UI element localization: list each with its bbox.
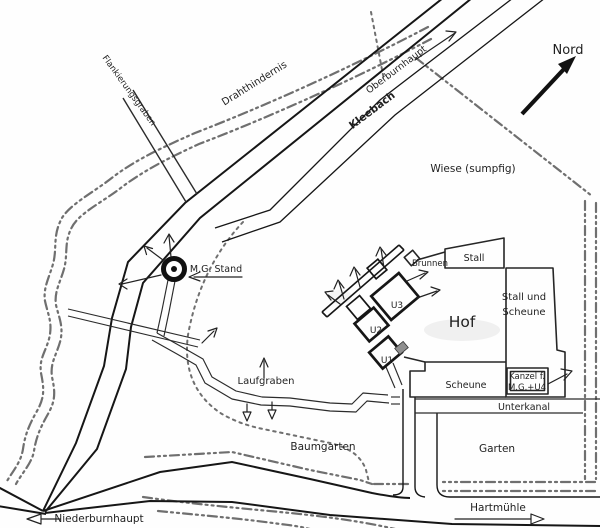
label-garten: Garten bbox=[479, 443, 515, 455]
label-kanzel-1: Kanzel f. bbox=[509, 372, 545, 382]
arrow-head bbox=[268, 410, 276, 419]
label-unterkanal: Unterkanal bbox=[498, 402, 550, 413]
arrow-head bbox=[144, 246, 153, 255]
trench-fire-arrows bbox=[202, 328, 276, 421]
label-mg-stand: M.G. Stand bbox=[190, 264, 242, 275]
label-u2: U2 bbox=[370, 326, 382, 336]
label-u3: U3 bbox=[391, 301, 403, 311]
map-canvas: Nord Wiese (sumpfig) Drahthindernis Ober… bbox=[0, 0, 600, 528]
label-stall-und-scheune-1: Stall und bbox=[502, 292, 546, 303]
label-wiese: Wiese (sumpfig) bbox=[430, 163, 515, 175]
communication-trench-line-1 bbox=[157, 333, 388, 404]
label-baumgarten: Baumgarten bbox=[290, 441, 355, 453]
hatched-block bbox=[395, 341, 409, 354]
hartmuehle-direction-arrow bbox=[455, 514, 544, 524]
arrow-head bbox=[334, 280, 344, 289]
north-arrow-shaft bbox=[522, 69, 564, 114]
trench-bunker-connector-2 bbox=[386, 367, 395, 388]
north-arrow bbox=[522, 56, 576, 114]
label-u1: U1 bbox=[381, 356, 393, 366]
garden-fence bbox=[437, 413, 600, 497]
rampart-room bbox=[367, 259, 387, 279]
farm-lane-west-edge bbox=[393, 389, 403, 495]
label-stall-und-scheune-2: Scheune bbox=[502, 307, 545, 318]
bunker-complex bbox=[322, 245, 419, 369]
trench-bunker-connector-1 bbox=[393, 363, 402, 385]
label-niederburnhaupt: Niederburnhaupt bbox=[54, 513, 143, 525]
sketch-map: Nord Wiese (sumpfig) Drahthindernis Ober… bbox=[0, 0, 600, 528]
south-road-upper-edge bbox=[43, 462, 410, 511]
arrow-shaft bbox=[202, 331, 214, 343]
arrow-shaft bbox=[122, 275, 161, 284]
arrow-head bbox=[27, 514, 41, 524]
mg-stand-dot bbox=[171, 266, 177, 272]
label-kanzel-2: M.G.+U4 bbox=[508, 383, 546, 393]
label-hof: Hof bbox=[449, 313, 476, 331]
label-laufgraben: Laufgraben bbox=[238, 376, 295, 387]
label-drahthindernis: Drahthindernis bbox=[220, 59, 289, 108]
label-stall: Stall bbox=[464, 253, 485, 264]
arrow-shaft bbox=[147, 248, 163, 260]
arrow-head bbox=[350, 267, 360, 276]
arrow-head bbox=[531, 514, 544, 524]
farm-lane-east-edge bbox=[415, 397, 425, 497]
flanking-trench-line-2 bbox=[123, 98, 186, 202]
arrow-head bbox=[243, 412, 251, 421]
wire-obstacle-line-outer bbox=[7, 27, 428, 481]
kanzel-fire-arrow bbox=[548, 369, 572, 384]
label-flankierungsgraben: Flankierungsgraben bbox=[100, 54, 158, 128]
label-brunnen: Brunnen bbox=[412, 259, 448, 269]
label-nord: Nord bbox=[552, 43, 583, 58]
label-kleebach: Kleebach bbox=[347, 89, 398, 131]
label-scheune: Scheune bbox=[445, 380, 486, 391]
label-hartmuehle: Hartmühle bbox=[470, 502, 526, 514]
scheune-bunker-connector bbox=[404, 357, 425, 362]
rampart-line-2 bbox=[322, 245, 399, 312]
